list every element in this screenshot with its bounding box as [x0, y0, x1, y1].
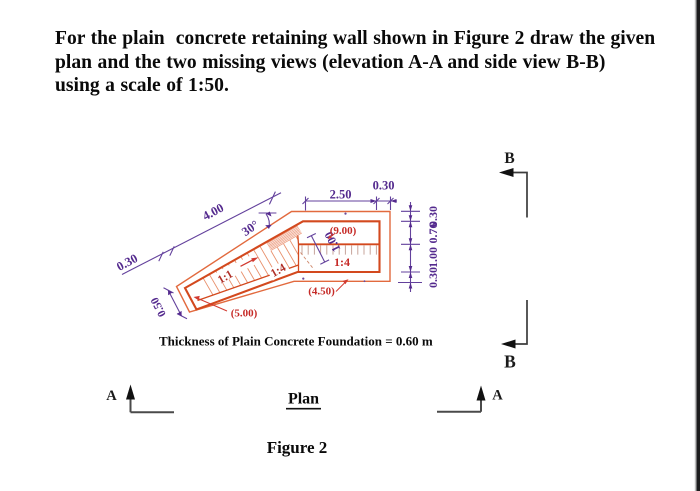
svg-text:0.30: 0.30	[426, 267, 440, 288]
svg-text:0.76: 0.76	[426, 223, 440, 244]
svg-text:30°: 30°	[239, 217, 261, 239]
svg-text:2.50: 2.50	[330, 187, 352, 201]
svg-text:A: A	[106, 388, 117, 404]
svg-text:4.00: 4.00	[200, 201, 226, 224]
svg-text:Figure 2: Figure 2	[267, 438, 328, 457]
svg-text:0.30: 0.30	[373, 178, 395, 192]
svg-text:1.00: 1.00	[426, 247, 440, 268]
svg-text:B: B	[504, 150, 514, 167]
svg-text:Thickness of Plain Concrete Fo: Thickness of Plain Concrete Foundation =…	[159, 334, 433, 349]
svg-text:(9.00): (9.00)	[330, 225, 357, 237]
svg-text:0.50: 0.50	[149, 295, 169, 319]
svg-text:(4.50): (4.50)	[308, 286, 335, 298]
svg-text:1:4: 1:4	[334, 255, 350, 269]
svg-text:0.30: 0.30	[114, 251, 140, 274]
svg-text:A: A	[492, 388, 503, 404]
svg-text:(5.00): (5.00)	[231, 308, 258, 320]
svg-text:B: B	[504, 352, 516, 372]
svg-text:Plan: Plan	[288, 391, 319, 408]
